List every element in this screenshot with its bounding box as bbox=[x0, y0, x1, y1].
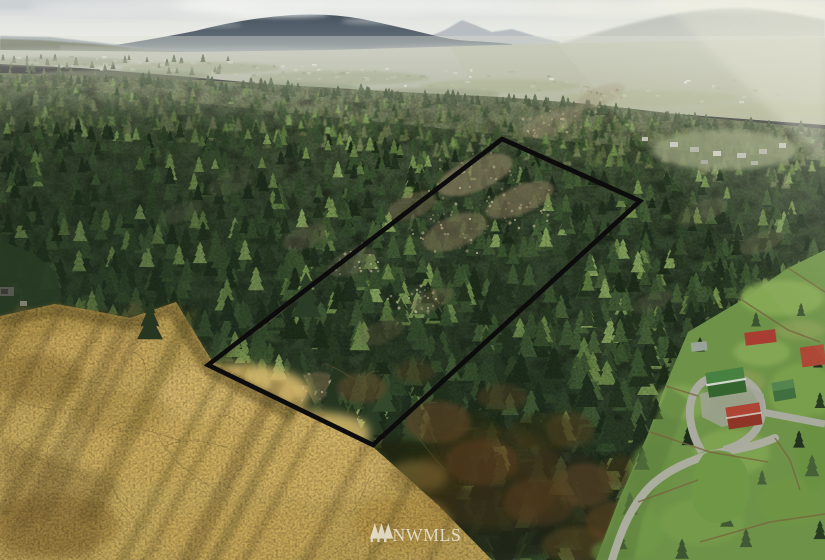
svg-text:NWMLS: NWMLS bbox=[393, 525, 462, 545]
